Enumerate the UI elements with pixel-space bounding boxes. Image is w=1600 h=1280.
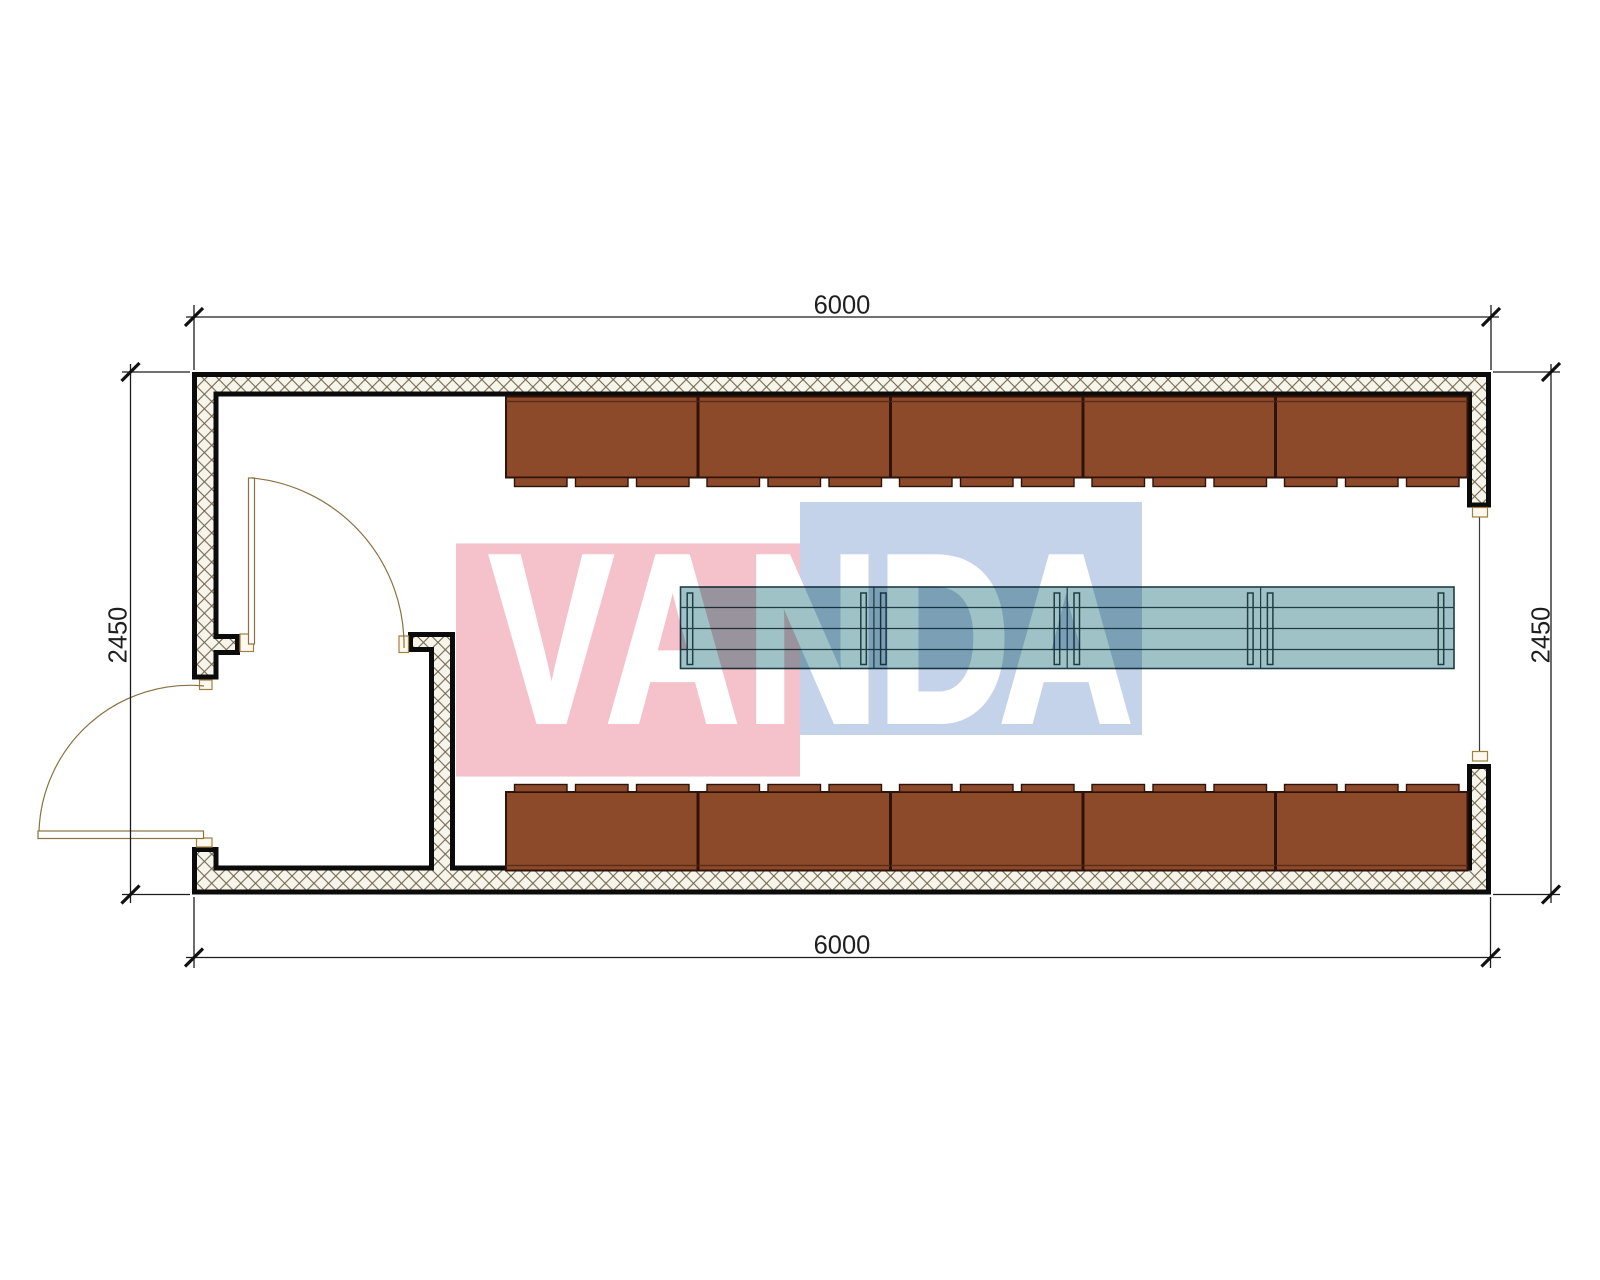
svg-text:6000: 6000 <box>814 932 871 960</box>
svg-text:2450: 2450 <box>1528 607 1556 664</box>
svg-text:6000: 6000 <box>814 292 871 320</box>
svg-text:2450: 2450 <box>105 607 133 664</box>
